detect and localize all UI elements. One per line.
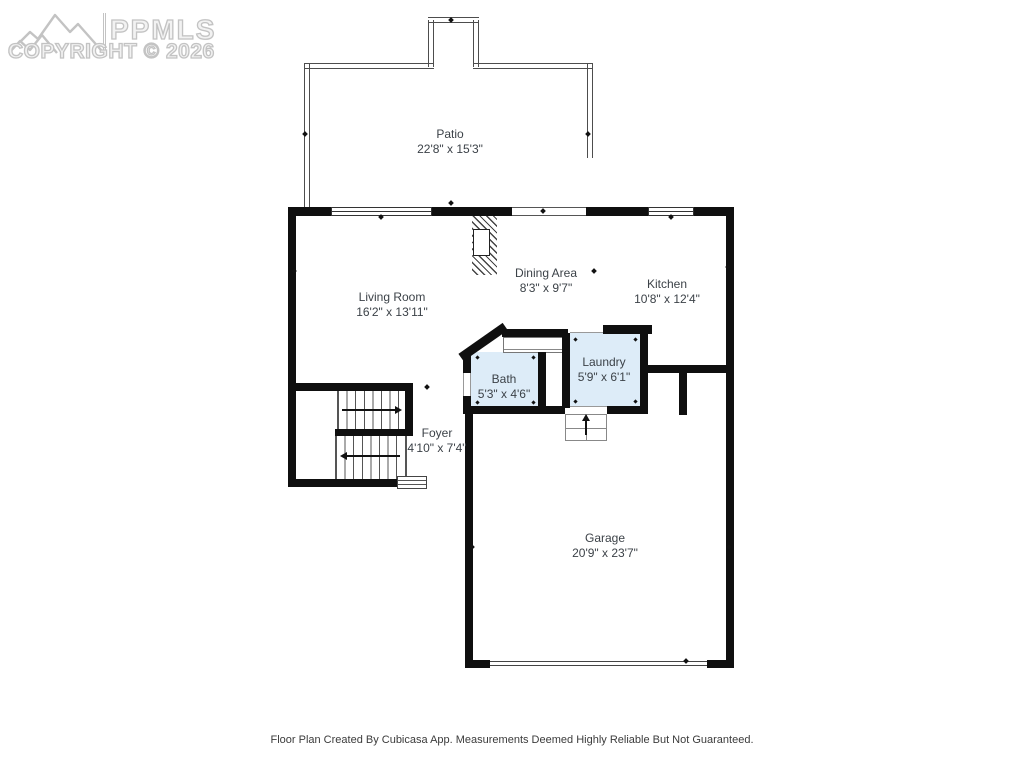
entry-steps-arrow-up-icon bbox=[582, 414, 590, 421]
watermark: PPMLS COPYRIGHT © 2026 bbox=[8, 6, 228, 66]
room-dimensions: 5'9" x 6'1" bbox=[578, 370, 630, 385]
room-label-kitchen: Kitchen 10'8" x 12'4" bbox=[634, 277, 700, 307]
bath-left-wall-upper bbox=[463, 355, 471, 373]
laundry-left-wall bbox=[562, 333, 570, 408]
floor-plan-canvas: PPMLS COPYRIGHT © 2026 bbox=[0, 0, 1024, 767]
left-exterior-wall bbox=[288, 207, 296, 487]
wall-segment bbox=[586, 207, 648, 216]
room-name: Patio bbox=[417, 127, 483, 142]
hall-stub-wall bbox=[679, 373, 687, 415]
bath-door-opening-line bbox=[470, 373, 471, 396]
garage-door bbox=[490, 661, 707, 666]
room-name: Foyer bbox=[407, 426, 466, 441]
room-label-living-room: Living Room 16'2" x 13'11" bbox=[356, 290, 428, 320]
front-door bbox=[397, 476, 427, 489]
bathtub bbox=[503, 337, 566, 353]
stair-arrow-left-icon bbox=[340, 452, 347, 460]
stair-arrow-line bbox=[342, 409, 396, 411]
patio-bump-left bbox=[428, 20, 434, 67]
room-dimensions: 10'8" x 12'4" bbox=[634, 292, 700, 307]
patio-outline-right bbox=[587, 63, 593, 158]
garage-bottom-wall-right bbox=[707, 660, 734, 668]
laundry-door-opening-line bbox=[570, 332, 603, 333]
measurement-tick bbox=[591, 268, 597, 274]
room-dimensions: 5'3" x 4'6" bbox=[478, 387, 530, 402]
room-label-laundry: Laundry 5'9" x 6'1" bbox=[578, 355, 630, 385]
right-exterior-wall bbox=[726, 207, 734, 668]
wall-segment bbox=[432, 207, 512, 216]
room-label-foyer: Foyer 4'10" x 7'4" bbox=[407, 426, 466, 456]
stair-mid-wall bbox=[335, 429, 413, 436]
bath-door-opening-line bbox=[463, 373, 464, 396]
room-name: Bath bbox=[478, 372, 530, 387]
foyer-bottom-wall bbox=[288, 479, 397, 487]
measurement-tick bbox=[448, 200, 454, 206]
room-label-bath: Bath 5'3" x 4'6" bbox=[478, 372, 530, 402]
bath-block-top-wall bbox=[502, 329, 568, 337]
patio-outline-top-right bbox=[473, 63, 593, 69]
room-name: Laundry bbox=[578, 355, 630, 370]
room-name: Dining Area bbox=[515, 266, 577, 281]
laundry-garage-opening-line bbox=[565, 406, 607, 407]
room-dimensions: 20'9" x 23'7" bbox=[572, 546, 638, 561]
bath-laundry-wall bbox=[538, 352, 546, 408]
measurement-tick bbox=[424, 384, 430, 390]
stair-arrow-line bbox=[346, 455, 400, 457]
stair-arrow-right-icon bbox=[395, 406, 402, 414]
patio-bump-right bbox=[473, 20, 479, 67]
room-dimensions: 8'3" x 9'7" bbox=[515, 281, 577, 296]
fireplace-firebox bbox=[473, 229, 490, 256]
block-bottom-wall-right bbox=[607, 406, 648, 414]
patio-sliding-door-opening bbox=[512, 207, 586, 216]
room-label-patio: Patio 22'8" x 15'3" bbox=[417, 127, 483, 157]
laundry-right-wall bbox=[640, 333, 648, 413]
stair-top-wall bbox=[288, 383, 413, 391]
room-label-garage: Garage 20'9" x 23'7" bbox=[572, 531, 638, 561]
room-dimensions: 4'10" x 7'4" bbox=[407, 441, 466, 456]
room-dimensions: 16'2" x 13'11" bbox=[356, 305, 428, 320]
room-name: Garage bbox=[572, 531, 638, 546]
room-dimensions: 22'8" x 15'3" bbox=[417, 142, 483, 157]
footer-disclaimer: Floor Plan Created By Cubicasa App. Meas… bbox=[0, 734, 1024, 746]
room-label-dining-area: Dining Area 8'3" x 9'7" bbox=[515, 266, 577, 296]
entry-steps-arrow-line bbox=[585, 420, 587, 435]
patio-outline-top-left bbox=[304, 63, 434, 69]
garage-bottom-wall-left bbox=[465, 660, 490, 668]
room-name: Living Room bbox=[356, 290, 428, 305]
block-bottom-wall-left bbox=[463, 406, 565, 414]
kitchen-south-wall bbox=[648, 365, 734, 373]
room-name: Kitchen bbox=[634, 277, 700, 292]
watermark-copyright: COPYRIGHT © 2026 bbox=[8, 40, 215, 64]
